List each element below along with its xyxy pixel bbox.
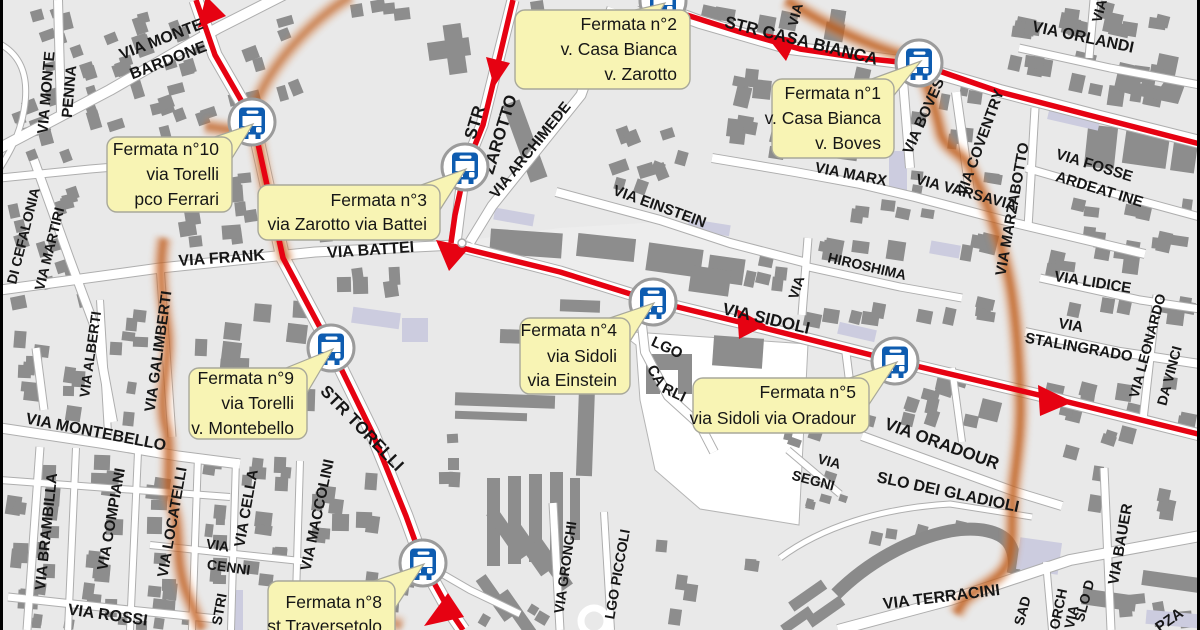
- svg-text:Fermata n°5: Fermata n°5: [760, 382, 856, 402]
- svg-text:v. Boves: v. Boves: [815, 133, 881, 153]
- svg-text:via Sidoli: via Sidoli: [547, 346, 617, 366]
- svg-text:via Zarotto via Battei: via Zarotto via Battei: [267, 214, 427, 234]
- svg-text:VIA: VIA: [205, 536, 230, 555]
- svg-text:via Torelli: via Torelli: [221, 393, 294, 413]
- svg-text:Fermata n°10: Fermata n°10: [113, 139, 219, 159]
- svg-text:v. Casa Bianca: v. Casa Bianca: [561, 39, 678, 59]
- svg-text:st Traversetolo: st Traversetolo: [267, 616, 382, 630]
- svg-text:Fermata n°9: Fermata n°9: [198, 368, 294, 388]
- svg-text:via Einstein: via Einstein: [528, 370, 618, 390]
- svg-text:v. Casa Bianca: v. Casa Bianca: [765, 108, 882, 128]
- svg-text:pco Ferrari: pco Ferrari: [134, 189, 219, 209]
- svg-text:Fermata n°1: Fermata n°1: [785, 83, 881, 103]
- svg-text:v. Montebello: v. Montebello: [191, 418, 294, 438]
- svg-text:Fermata n°4: Fermata n°4: [521, 320, 618, 340]
- svg-text:via Torelli: via Torelli: [146, 164, 219, 184]
- svg-text:v. Zarotto: v. Zarotto: [604, 64, 677, 84]
- svg-text:Fermata n°2: Fermata n°2: [581, 14, 677, 34]
- svg-text:via Sidoli via Oradour: via Sidoli via Oradour: [690, 408, 856, 428]
- svg-text:Fermata n°8: Fermata n°8: [286, 592, 382, 612]
- svg-text:Fermata n°3: Fermata n°3: [331, 190, 427, 210]
